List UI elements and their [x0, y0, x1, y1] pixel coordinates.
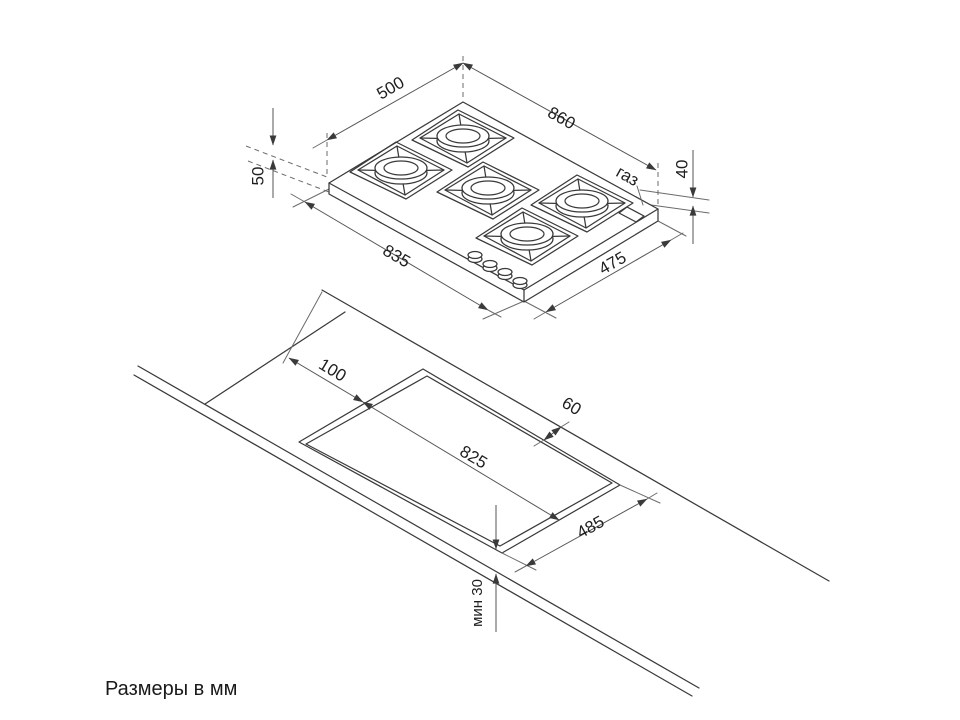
- extension-line: [483, 301, 524, 319]
- dim-label-485: 485: [573, 512, 607, 542]
- control-knob: [468, 252, 482, 263]
- dim-label-60: 60: [559, 393, 585, 419]
- dim-label-100: 100: [315, 355, 349, 386]
- worktop-back-edge: [322, 290, 829, 581]
- dim-overrun: [671, 233, 683, 240]
- technical-drawing-page: 500 860 50 40 835 475 газ: [0, 0, 960, 720]
- dim-label-860: 860: [544, 103, 578, 133]
- dim-overrun: [647, 493, 657, 499]
- dim-line-60: [544, 427, 561, 440]
- worktop: [134, 290, 829, 696]
- dim-label-500: 500: [373, 73, 407, 104]
- dim-label-835: 835: [379, 241, 413, 272]
- dim-overrun: [313, 140, 327, 148]
- hob-isometric-view: 500 860 50 40 835 475 газ: [246, 56, 709, 319]
- extension-line: [283, 292, 322, 363]
- extension-line: [640, 190, 709, 200]
- dim-overrun: [534, 312, 546, 319]
- worktop-front-edge: [138, 366, 699, 688]
- control-knob: [498, 269, 512, 280]
- worktop-front-edge-thickness: [134, 375, 692, 696]
- dim-label-825: 825: [456, 442, 490, 473]
- dim-label-475: 475: [595, 248, 629, 279]
- gas-label: газ: [613, 162, 642, 190]
- dim-overrun: [515, 566, 526, 572]
- gas-hob-dimension-drawing: 500 860 50 40 835 475 газ: [0, 0, 960, 720]
- dim-label-min30: мин 30: [469, 579, 486, 627]
- caption: Размеры в мм: [105, 678, 237, 701]
- dim-line-825: [363, 402, 559, 520]
- dim-label-50: 50: [248, 167, 267, 186]
- dim-label-40: 40: [672, 160, 691, 179]
- dim-overrun: [291, 194, 305, 202]
- extension-line: [502, 553, 536, 570]
- control-knob: [483, 261, 497, 272]
- extension-line: [620, 485, 660, 503]
- dim-overrun: [561, 422, 569, 427]
- worktop-cutout-view: 100 825 60 485 мин 30: [134, 290, 829, 696]
- control-knob: [513, 278, 527, 289]
